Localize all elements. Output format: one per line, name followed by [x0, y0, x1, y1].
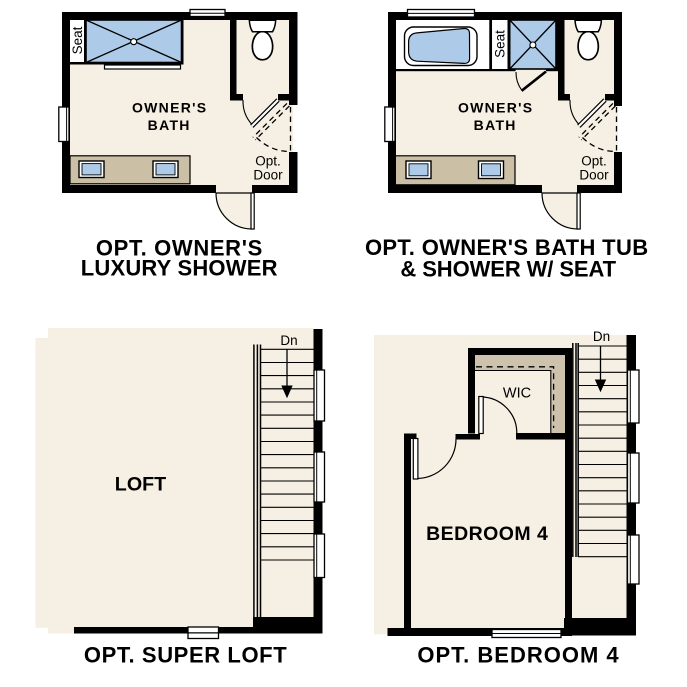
- svg-text:Door: Door: [579, 167, 609, 182]
- svg-text:BEDROOM 4: BEDROOM 4: [426, 523, 548, 545]
- svg-text:Door: Door: [253, 167, 283, 182]
- svg-text:BATH: BATH: [148, 117, 191, 133]
- svg-text:Seat: Seat: [70, 26, 85, 54]
- svg-text:BATH: BATH: [474, 117, 517, 133]
- svg-text:& SHOWER W/ SEAT: & SHOWER W/ SEAT: [400, 257, 616, 282]
- svg-text:Seat: Seat: [493, 30, 508, 58]
- svg-text:WIC: WIC: [503, 386, 531, 402]
- svg-text:LOFT: LOFT: [115, 474, 166, 496]
- svg-text:Opt.: Opt.: [581, 154, 607, 169]
- svg-text:OWNER'S: OWNER'S: [458, 99, 533, 115]
- svg-text:Opt.: Opt.: [255, 154, 281, 169]
- svg-text:Dn: Dn: [280, 333, 297, 348]
- svg-text:Dn: Dn: [593, 329, 610, 344]
- svg-text:OPT. BEDROOM 4: OPT. BEDROOM 4: [417, 642, 619, 667]
- svg-text:OPT. SUPER LOFT: OPT. SUPER LOFT: [84, 642, 287, 667]
- svg-text:LUXURY SHOWER: LUXURY SHOWER: [81, 256, 278, 281]
- svg-text:OWNER'S: OWNER'S: [132, 99, 207, 115]
